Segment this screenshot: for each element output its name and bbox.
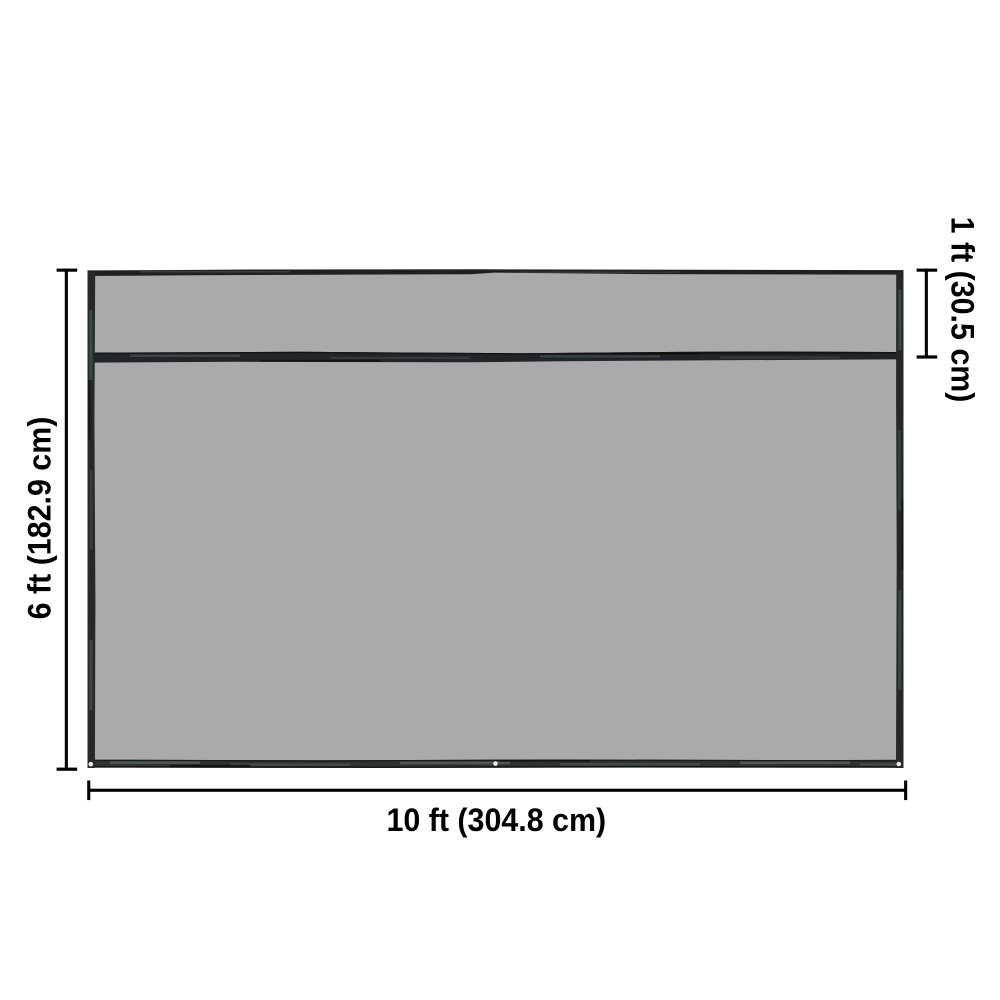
svg-text:10 ft (304.8 cm): 10 ft (304.8 cm) [386,802,606,838]
svg-text:1 ft (30.5 cm): 1 ft (30.5 cm) [944,217,980,403]
svg-text:6 ft (182.9 cm): 6 ft (182.9 cm) [22,417,58,620]
